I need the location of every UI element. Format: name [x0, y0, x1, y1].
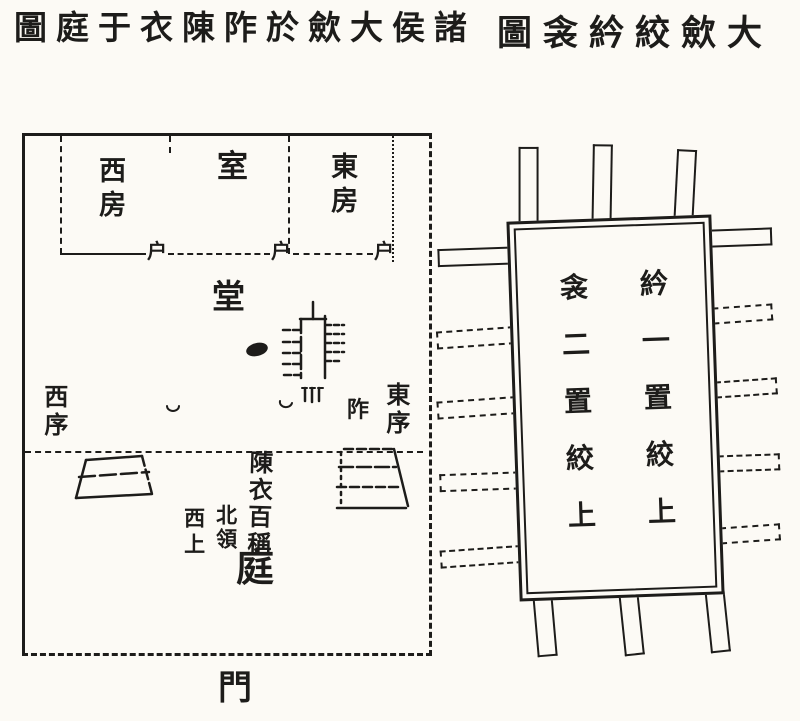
- pillar-circle-east: [277, 398, 295, 412]
- hall-label: 堂: [212, 281, 245, 317]
- binding-strip-left-5: [440, 545, 523, 569]
- west-chamber-label: 西房: [95, 156, 124, 224]
- dressing-couch-figure: [278, 299, 348, 405]
- binding-strip-top-2: [592, 144, 613, 222]
- pillar-circle-west: [164, 402, 182, 416]
- east-chamber-label: 東房: [327, 152, 356, 220]
- door-wall-segment-3: [293, 253, 373, 255]
- binding-strip-right-5: [720, 523, 781, 544]
- binding-strip-right-3: [715, 377, 778, 398]
- right-diagram-title: 圖衾紟絞歛大: [497, 15, 773, 53]
- binding-strip-bottom-3: [704, 589, 730, 654]
- door-label-2: 户: [271, 242, 291, 264]
- gate-label: 門: [218, 671, 252, 708]
- chamber-divider-east: [288, 136, 290, 254]
- binding-strip-left-2: [436, 326, 515, 349]
- binding-strip-left-4: [439, 471, 520, 492]
- binding-strip-right-4: [718, 453, 781, 472]
- east-wall-label: 東序: [381, 382, 407, 438]
- eastern-steps-label: 阼: [347, 398, 369, 422]
- door-label-1: 户: [147, 242, 167, 264]
- chamber-divider-west-remnant: [169, 136, 171, 153]
- binding-strip-bottom-2: [619, 594, 645, 657]
- shroud-inner-border: [514, 222, 718, 594]
- binding-strip-bottom-1: [533, 597, 558, 658]
- binding-strip-right-2: [712, 303, 773, 324]
- left-diagram-title: 圖庭于衣陳阼於歛大侯諸: [14, 12, 476, 48]
- west-steps-figure: [74, 453, 154, 503]
- shroud-diagram: 紟一置絞上 衾二置絞上: [506, 215, 724, 602]
- door-wall-segment-2: [168, 253, 270, 255]
- clothes-display-note: 陳衣百稱: [242, 450, 271, 559]
- binding-strip-top-3: [673, 149, 697, 220]
- binding-strip-right-1: [710, 227, 773, 247]
- east-steps-figure: [334, 442, 416, 514]
- binding-strip-left-1: [437, 247, 512, 268]
- ink-blob-marker: [245, 341, 269, 359]
- hall-plan-outer-wall: 西房 室 東房 户 户 户 堂: [22, 133, 432, 656]
- chamber-left-divider: [60, 136, 62, 254]
- book-page: 圖庭于衣陳阼於歛大侯諸 圖衾紟絞歛大 西房 室 東房 户 户 户 堂: [0, 0, 800, 721]
- west-wall-label: 西序: [39, 384, 65, 440]
- binding-strip-left-3: [436, 396, 517, 420]
- collars-north-note: 北領: [214, 504, 237, 552]
- west-first-note: 西上: [182, 507, 205, 559]
- door-wall-segment-1: [60, 253, 146, 255]
- binding-strip-top-1: [519, 147, 539, 225]
- door-label-3: 户: [374, 242, 394, 264]
- central-chamber-label: 室: [217, 150, 248, 183]
- courtyard-label: 庭: [236, 549, 274, 590]
